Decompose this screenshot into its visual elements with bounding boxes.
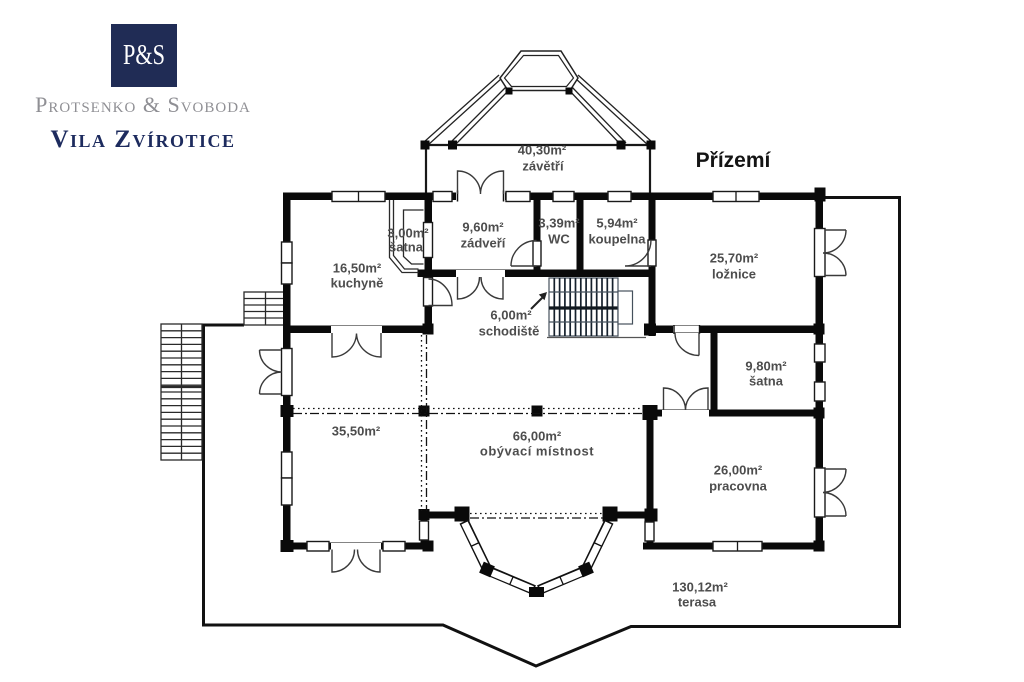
svg-text:kuchyně: kuchyně xyxy=(331,276,384,291)
svg-text:Přízemí: Přízemí xyxy=(696,149,772,172)
svg-text:Protsenko & Svoboda: Protsenko & Svoboda xyxy=(35,92,251,117)
svg-text:obývací místnost: obývací místnost xyxy=(480,444,594,459)
svg-text:ložnice: ložnice xyxy=(712,267,756,282)
svg-text:terasa: terasa xyxy=(678,595,717,610)
svg-text:pracovna: pracovna xyxy=(709,479,768,494)
svg-text:130,12m²: 130,12m² xyxy=(672,580,728,595)
svg-text:3,00m²: 3,00m² xyxy=(387,226,429,241)
svg-text:5,94m²: 5,94m² xyxy=(596,216,638,231)
svg-text:6,00m²: 6,00m² xyxy=(490,308,532,323)
svg-text:schodiště: schodiště xyxy=(479,324,540,339)
svg-text:závětří: závětří xyxy=(522,159,564,174)
svg-text:koupelna: koupelna xyxy=(588,232,646,247)
svg-text:WC: WC xyxy=(548,232,570,247)
svg-text:40,30m²: 40,30m² xyxy=(518,143,567,158)
svg-text:šatna: šatna xyxy=(749,374,784,389)
svg-text:3,39m²: 3,39m² xyxy=(538,216,580,231)
svg-text:9,60m²: 9,60m² xyxy=(462,220,504,235)
svg-text:26,00m²: 26,00m² xyxy=(714,463,763,478)
svg-text:16,50m²: 16,50m² xyxy=(333,261,382,276)
svg-text:9,80m²: 9,80m² xyxy=(745,359,787,374)
svg-text:zádveří: zádveří xyxy=(461,236,506,251)
svg-text:šatna: šatna xyxy=(389,240,424,255)
svg-text:35,50m²: 35,50m² xyxy=(332,424,381,439)
svg-text:Vila Zvírotice: Vila Zvírotice xyxy=(50,126,235,153)
svg-text:66,00m²: 66,00m² xyxy=(513,429,562,444)
svg-text:25,70m²: 25,70m² xyxy=(710,251,759,266)
svg-text:P&S: P&S xyxy=(123,39,165,71)
